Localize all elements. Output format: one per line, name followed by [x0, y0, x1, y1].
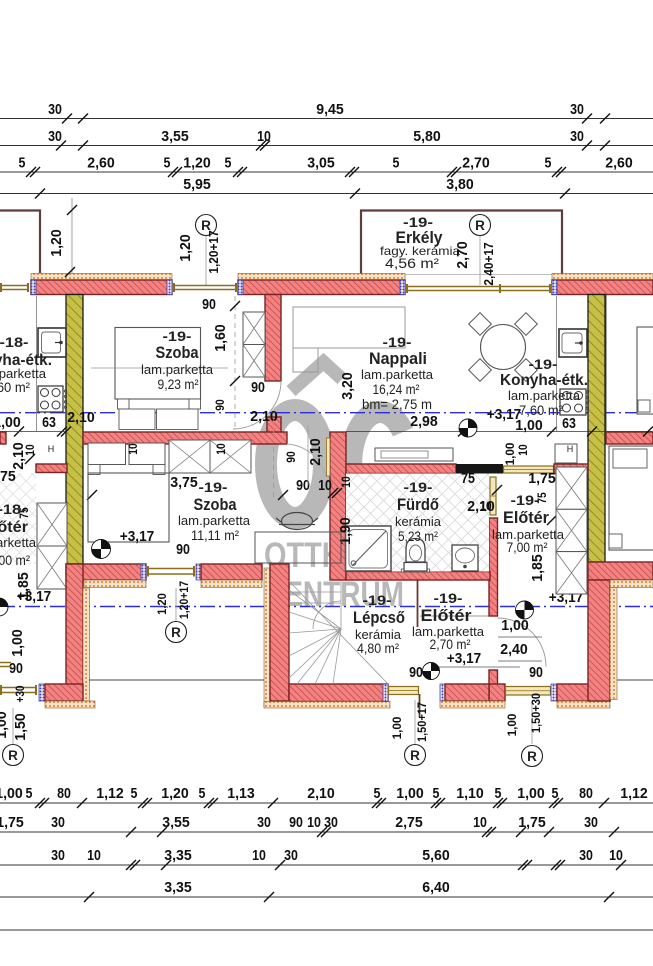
svg-text:1,20+17: 1,20+17: [206, 230, 221, 273]
svg-text:2,60: 2,60: [87, 156, 115, 172]
svg-text:7,60 m²: 7,60 m²: [0, 380, 30, 395]
svg-text:1,00: 1,00: [390, 716, 404, 739]
svg-text:-19-: -19-: [511, 493, 540, 508]
svg-text:1,00: 1,00: [0, 415, 21, 431]
svg-text:10: 10: [214, 443, 228, 455]
svg-text:1,00: 1,00: [517, 786, 545, 802]
svg-text:2,10: 2,10: [308, 438, 324, 466]
svg-text:5: 5: [164, 156, 171, 172]
svg-text:1,50: 1,50: [13, 713, 29, 741]
svg-text:90: 90: [251, 380, 265, 396]
svg-text:R: R: [8, 748, 18, 763]
svg-text:9,23 m²: 9,23 m²: [158, 377, 199, 392]
svg-text:30: 30: [584, 815, 598, 831]
svg-text:R: R: [527, 749, 537, 764]
svg-text:1,13: 1,13: [227, 786, 255, 802]
svg-text:lam.parketta: lam.parketta: [361, 367, 434, 382]
svg-text:H: H: [567, 444, 574, 454]
svg-text:3,20: 3,20: [340, 372, 356, 400]
svg-text:5,95: 5,95: [183, 177, 211, 193]
svg-text:5: 5: [199, 786, 206, 802]
svg-text:4,56 m²: 4,56 m²: [385, 256, 440, 271]
svg-text:2,75: 2,75: [395, 815, 423, 831]
svg-text:5: 5: [26, 786, 33, 802]
svg-text:11,11 m²: 11,11 m²: [191, 528, 239, 543]
svg-text:5,80: 5,80: [413, 129, 441, 145]
svg-text:1,10: 1,10: [456, 786, 484, 802]
svg-text:Nappali: Nappali: [369, 349, 427, 368]
svg-text:1,85: 1,85: [530, 554, 546, 582]
svg-text:90: 90: [529, 665, 543, 681]
svg-text:1,20: 1,20: [161, 786, 189, 802]
svg-text:10: 10: [126, 443, 140, 455]
svg-text:1,12: 1,12: [620, 786, 648, 802]
svg-text:5: 5: [19, 156, 26, 172]
svg-text:-19-: -19-: [434, 591, 463, 606]
svg-text:80: 80: [579, 786, 593, 802]
svg-text:63: 63: [42, 415, 56, 431]
svg-text:6,40: 6,40: [422, 880, 450, 896]
svg-text:1,90: 1,90: [338, 517, 354, 545]
svg-text:30: 30: [284, 848, 298, 864]
svg-text:+3,17: +3,17: [17, 589, 51, 605]
svg-text:H: H: [48, 444, 55, 454]
svg-text:-19-: -19-: [199, 480, 228, 495]
svg-text:5,60: 5,60: [422, 848, 450, 864]
svg-text:7,60 m²: 7,60 m²: [519, 403, 563, 418]
svg-text:lam.parketta: lam.parketta: [178, 513, 251, 528]
svg-text:1,00: 1,00: [505, 713, 519, 736]
svg-text:lam.parketta: lam.parketta: [141, 362, 214, 377]
svg-text:16,24 m²: 16,24 m²: [373, 382, 420, 397]
svg-text:-18-: -18-: [0, 501, 27, 517]
svg-text:30: 30: [570, 129, 584, 145]
svg-text:1,50+17: 1,50+17: [415, 702, 429, 742]
svg-text:R: R: [475, 218, 485, 233]
svg-text:1,00: 1,00: [10, 629, 26, 657]
svg-text:-19-: -19-: [383, 335, 412, 350]
svg-text:-19-: -19-: [529, 357, 558, 372]
svg-text:5: 5: [545, 156, 552, 172]
svg-text:7,00 m²: 7,00 m²: [0, 553, 30, 568]
svg-text:2,70: 2,70: [455, 241, 471, 269]
svg-text:1,20: 1,20: [178, 234, 194, 262]
svg-text:-19-: -19-: [404, 480, 433, 495]
svg-text:1,75: 1,75: [528, 471, 556, 487]
svg-text:90: 90: [289, 815, 303, 831]
svg-text:-19-: -19-: [363, 593, 392, 608]
svg-text:90: 90: [202, 297, 216, 313]
svg-text:1,20: 1,20: [49, 229, 65, 257]
svg-text:90: 90: [176, 542, 190, 558]
svg-text:1,20: 1,20: [183, 156, 211, 172]
svg-text:30: 30: [257, 815, 271, 831]
svg-text:10: 10: [516, 444, 530, 456]
svg-text:5: 5: [393, 156, 400, 172]
svg-text:10: 10: [480, 499, 492, 513]
svg-text:80: 80: [57, 786, 71, 802]
svg-text:Szoba: Szoba: [194, 495, 237, 514]
svg-text:3,75: 3,75: [170, 475, 198, 491]
svg-text:30: 30: [570, 102, 584, 118]
svg-text:3,80: 3,80: [446, 177, 474, 193]
svg-text:5: 5: [225, 156, 232, 172]
svg-text:1,00: 1,00: [0, 786, 23, 802]
svg-text:kerámia: kerámia: [355, 627, 402, 642]
svg-text:10: 10: [609, 848, 623, 864]
svg-text:9,45: 9,45: [316, 102, 344, 118]
svg-text:R: R: [410, 748, 420, 763]
svg-text:1,00: 1,00: [501, 618, 529, 634]
svg-text:2,10: 2,10: [307, 786, 335, 802]
svg-text:1,00: 1,00: [396, 786, 424, 802]
svg-text:-18-: -18-: [0, 334, 29, 350]
svg-text:30: 30: [51, 815, 65, 831]
svg-text:R: R: [171, 625, 181, 640]
svg-text:1,75: 1,75: [0, 815, 24, 831]
svg-text:90: 90: [409, 665, 423, 681]
svg-text:90: 90: [9, 661, 23, 677]
svg-text:kerámia: kerámia: [395, 514, 442, 529]
svg-text:2,60: 2,60: [605, 156, 633, 172]
svg-text:3,05: 3,05: [307, 156, 335, 172]
svg-text:+3,17: +3,17: [120, 529, 154, 545]
svg-text:10: 10: [307, 815, 321, 831]
svg-text:2,10: 2,10: [67, 410, 95, 426]
svg-text:Előtér: Előtér: [503, 509, 550, 527]
svg-text:75: 75: [461, 471, 475, 487]
svg-text:+3,17: +3,17: [447, 651, 481, 667]
svg-text:30: 30: [51, 848, 65, 864]
svg-text:10: 10: [339, 476, 353, 488]
svg-text:bm= 2,75 m: bm= 2,75 m: [362, 397, 432, 412]
svg-text:3,35: 3,35: [164, 848, 192, 864]
svg-text:30: 30: [48, 102, 62, 118]
svg-text:30: 30: [48, 129, 62, 145]
svg-text:1,00: 1,00: [0, 711, 10, 739]
svg-text:7,00 m²: 7,00 m²: [507, 540, 548, 555]
svg-text:+30: +30: [13, 685, 27, 702]
svg-text:2,40: 2,40: [500, 642, 528, 658]
svg-text:63: 63: [562, 416, 576, 432]
svg-text:3,55: 3,55: [161, 129, 189, 145]
svg-text:Lépcső: Lépcső: [353, 609, 405, 627]
svg-text:1,20+17: 1,20+17: [179, 581, 191, 619]
svg-text:10: 10: [252, 848, 266, 864]
svg-text:-19-: -19-: [163, 329, 192, 344]
svg-text:1,60: 1,60: [213, 324, 229, 352]
svg-text:30: 30: [579, 848, 593, 864]
svg-text:90: 90: [284, 451, 298, 463]
svg-text:1,00: 1,00: [515, 418, 543, 434]
svg-text:lam.parketta: lam.parketta: [508, 388, 581, 403]
svg-text:3,35: 3,35: [164, 880, 192, 896]
svg-text:10: 10: [87, 848, 101, 864]
svg-text:1,50+30: 1,50+30: [529, 693, 543, 733]
svg-text:Konyha-étk.: Konyha-étk.: [500, 372, 588, 389]
svg-text:1,75: 1,75: [0, 469, 16, 485]
svg-text:90: 90: [213, 399, 227, 411]
svg-text:1,75: 1,75: [518, 815, 546, 831]
svg-text:2,98: 2,98: [410, 414, 438, 430]
svg-text:1,12: 1,12: [96, 786, 124, 802]
svg-text:10: 10: [318, 478, 332, 494]
svg-text:Előtér: Előtér: [0, 519, 28, 536]
svg-text:4,80 m²: 4,80 m²: [357, 641, 399, 656]
svg-text:2,70 m²: 2,70 m²: [430, 637, 471, 652]
svg-text:10: 10: [473, 815, 487, 831]
svg-text:Előtér: Előtér: [421, 607, 473, 625]
svg-text:lam.parketta: lam.parketta: [0, 535, 37, 550]
svg-text:Fürdő: Fürdő: [397, 496, 439, 514]
svg-text:2,70: 2,70: [462, 156, 490, 172]
svg-text:lam.parketta: lam.parketta: [0, 366, 47, 381]
svg-text:Szoba: Szoba: [156, 343, 199, 362]
svg-text:5: 5: [131, 786, 138, 802]
svg-text:1,00: 1,00: [503, 442, 517, 465]
svg-text:5,23 m²: 5,23 m²: [398, 529, 438, 544]
svg-text:2,40+17: 2,40+17: [481, 242, 496, 285]
svg-text:1,20: 1,20: [157, 593, 169, 615]
